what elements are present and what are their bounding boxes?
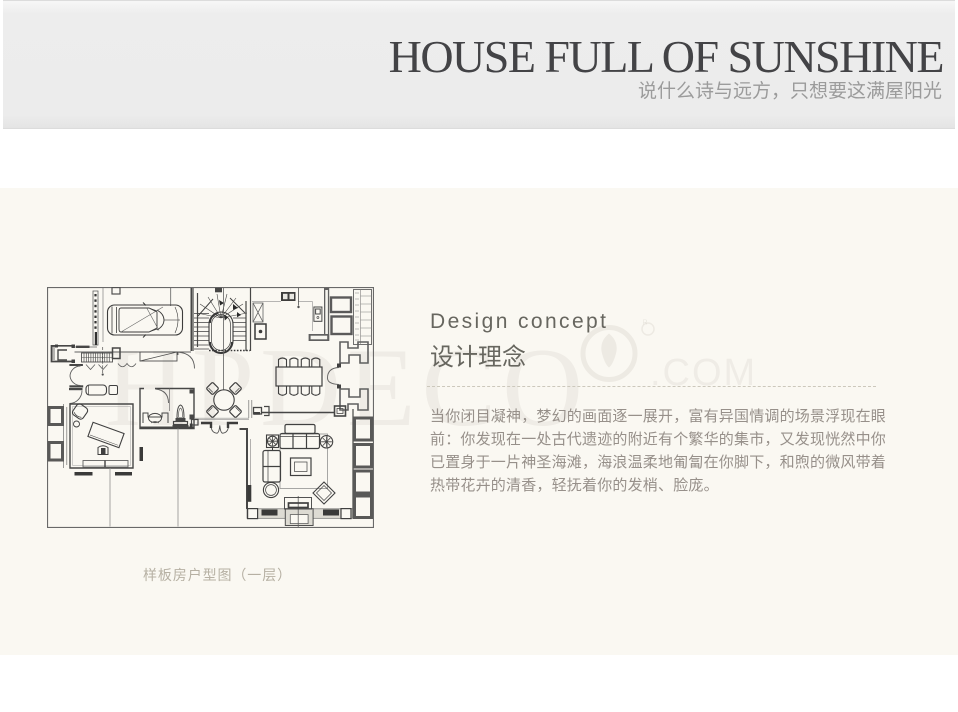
svg-text:.COM: .COM <box>650 352 757 394</box>
svg-text:R: R <box>642 320 647 327</box>
